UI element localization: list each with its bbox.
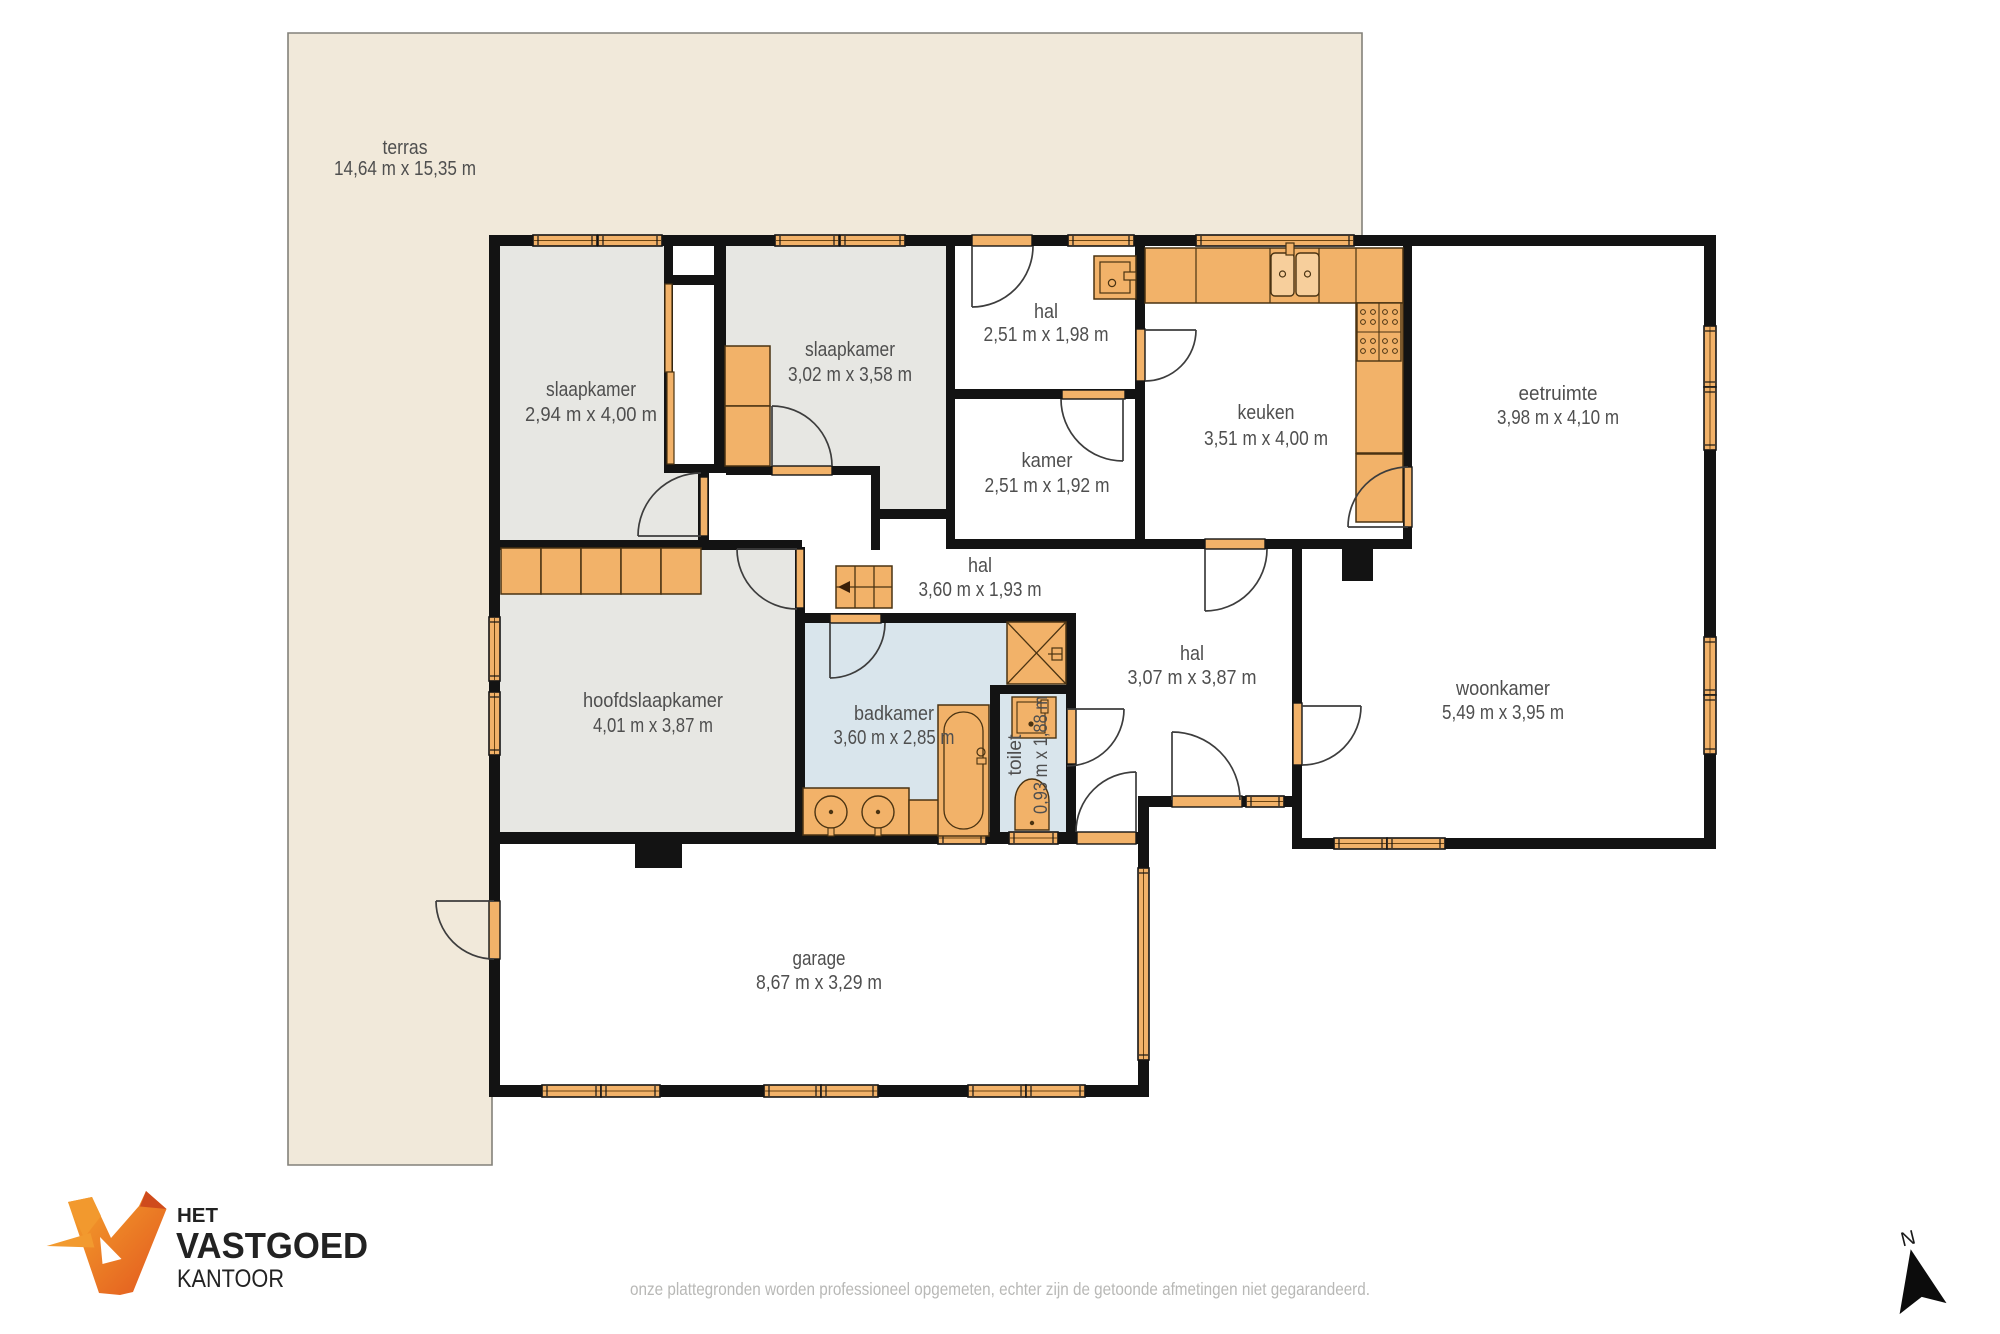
svg-text:3,02 m x 3,58 m: 3,02 m x 3,58 m: [788, 364, 912, 386]
svg-text:KANTOOR: KANTOOR: [177, 1265, 284, 1293]
svg-text:hal: hal: [1034, 301, 1058, 323]
svg-text:badkamer: badkamer: [854, 703, 934, 725]
svg-text:hal: hal: [968, 555, 992, 577]
svg-text:3,07 m x 3,87 m: 3,07 m x 3,87 m: [1128, 667, 1257, 689]
svg-text:0,93 m x 1,88 m: 0,93 m x 1,88 m: [1031, 696, 1052, 814]
svg-text:hal: hal: [1180, 643, 1204, 665]
svg-text:toilet: toilet: [1005, 734, 1026, 776]
svg-text:3,51 m x 4,00 m: 3,51 m x 4,00 m: [1204, 428, 1328, 450]
svg-text:woonkamer: woonkamer: [1455, 678, 1550, 700]
svg-text:onze plattegronden worden prof: onze plattegronden worden professioneel …: [630, 1279, 1370, 1299]
svg-text:eetruimte: eetruimte: [1519, 383, 1598, 405]
svg-text:4,01 m x 3,87 m: 4,01 m x 3,87 m: [593, 715, 713, 737]
svg-text:HET: HET: [177, 1205, 218, 1227]
svg-text:kamer: kamer: [1022, 450, 1073, 472]
svg-text:2,51 m x 1,92 m: 2,51 m x 1,92 m: [985, 475, 1110, 497]
svg-text:3,98 m x 4,10 m: 3,98 m x 4,10 m: [1497, 407, 1619, 429]
svg-text:3,60 m x 2,85 m: 3,60 m x 2,85 m: [834, 727, 955, 749]
svg-text:5,49 m x 3,95 m: 5,49 m x 3,95 m: [1442, 702, 1564, 724]
svg-text:slaapkamer: slaapkamer: [546, 379, 636, 401]
svg-text:3,60 m x 1,93 m: 3,60 m x 1,93 m: [919, 579, 1042, 601]
svg-text:hoofdslaapkamer: hoofdslaapkamer: [583, 690, 723, 712]
svg-text:terras: terras: [383, 137, 428, 159]
svg-text:14,64 m x 15,35 m: 14,64 m x 15,35 m: [334, 158, 476, 180]
svg-text:VASTGOED: VASTGOED: [176, 1225, 368, 1266]
svg-text:2,51 m x 1,98 m: 2,51 m x 1,98 m: [984, 324, 1109, 346]
svg-text:2,94 m x 4,00 m: 2,94 m x 4,00 m: [525, 404, 657, 426]
svg-text:keuken: keuken: [1238, 402, 1295, 424]
svg-text:garage: garage: [793, 948, 846, 970]
svg-text:slaapkamer: slaapkamer: [805, 339, 895, 361]
svg-text:8,67 m x 3,29 m: 8,67 m x 3,29 m: [756, 972, 882, 994]
